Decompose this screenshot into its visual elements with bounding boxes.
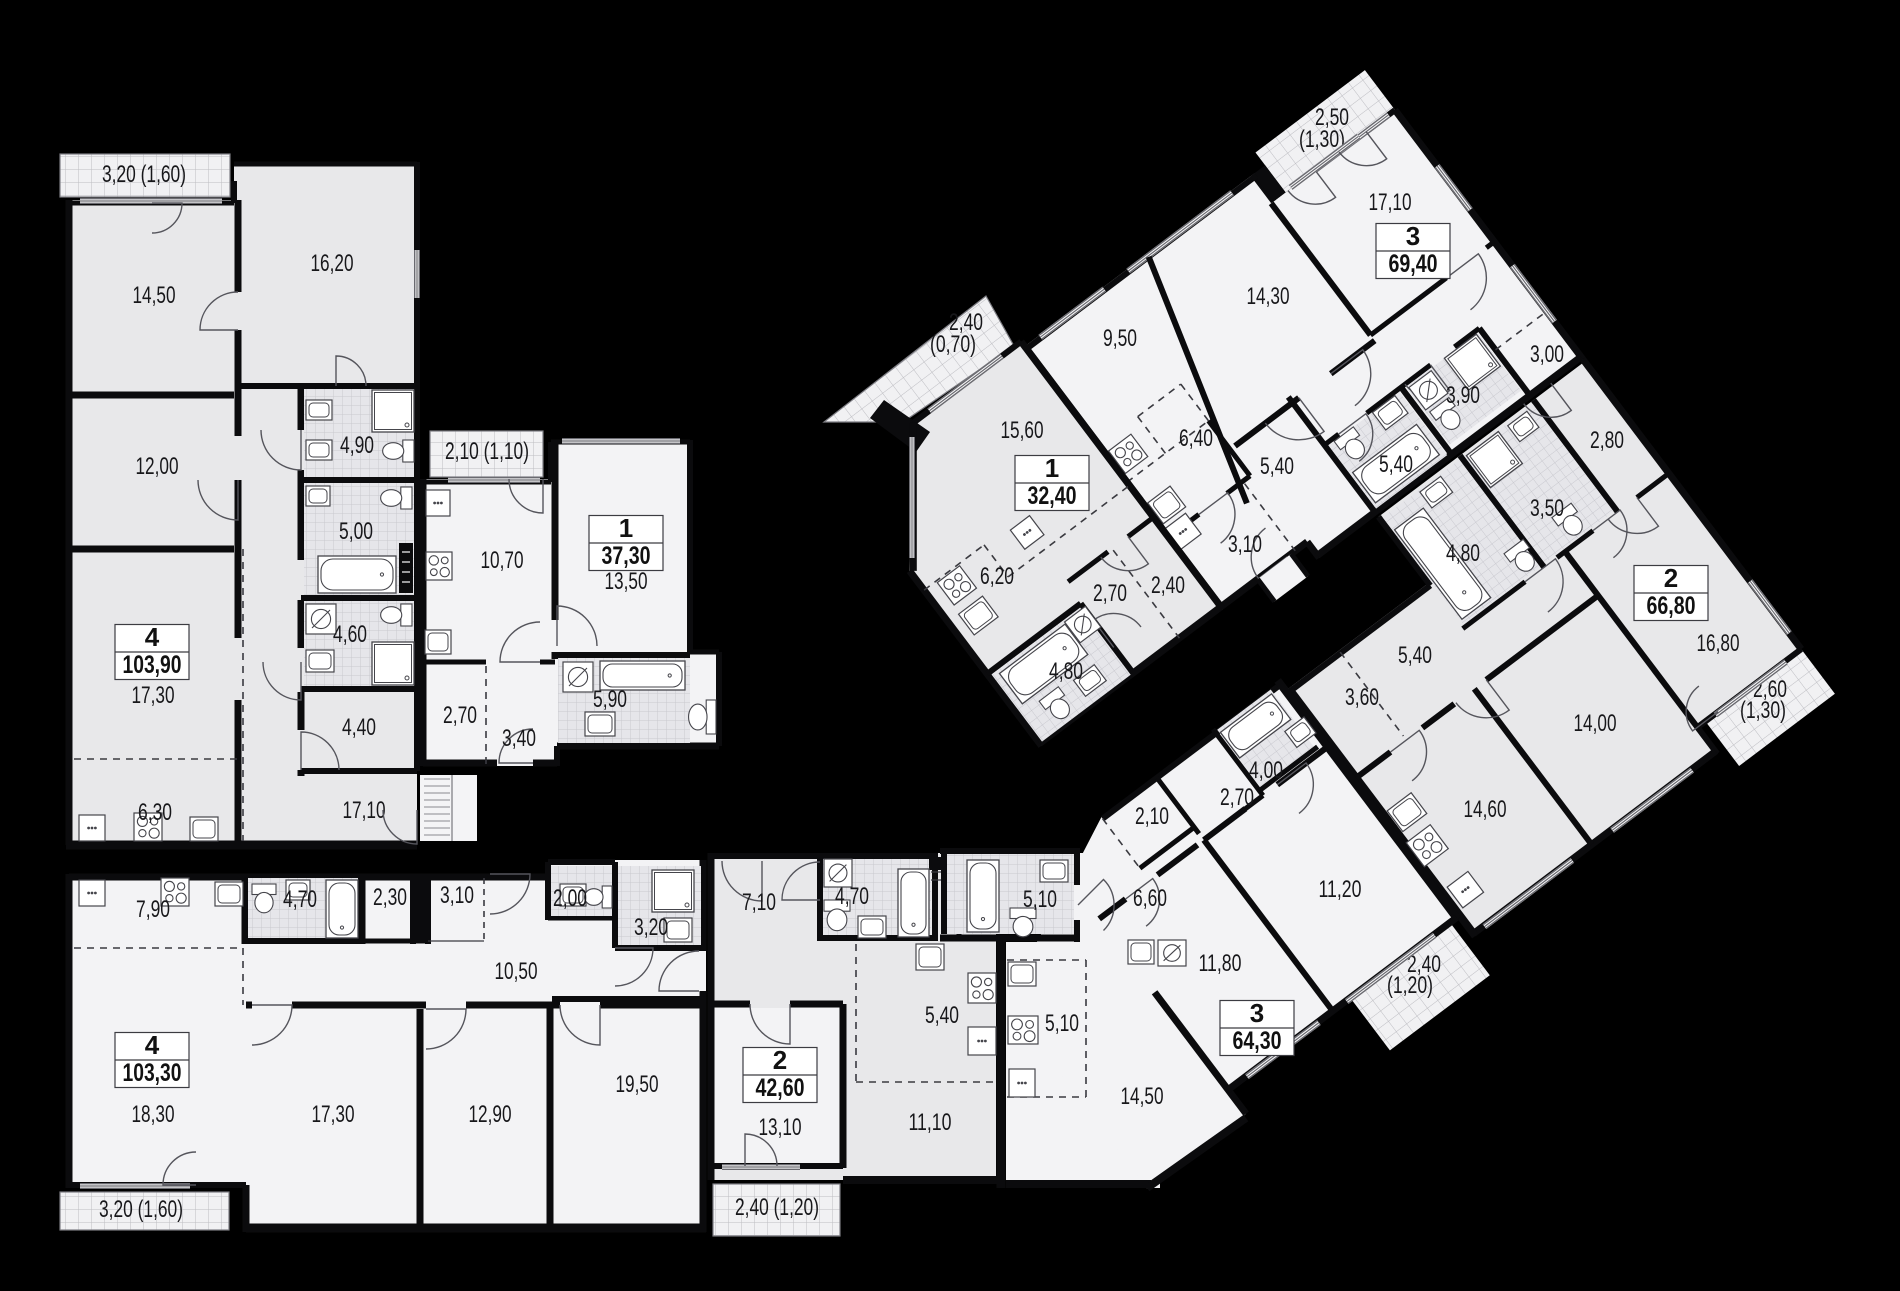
svg-text:2,70: 2,70: [443, 702, 477, 729]
svg-text:3,10: 3,10: [1228, 531, 1262, 558]
svg-text:6,40: 6,40: [1179, 425, 1213, 452]
svg-text:14,60: 14,60: [1464, 796, 1507, 823]
svg-text:5,40: 5,40: [1260, 453, 1294, 480]
svg-text:2,70: 2,70: [1093, 580, 1127, 607]
svg-text:16,20: 16,20: [311, 250, 354, 277]
svg-text:3: 3: [1406, 221, 1420, 251]
svg-text:2,30: 2,30: [373, 884, 407, 911]
svg-text:7,90: 7,90: [136, 896, 170, 923]
svg-text:18,30: 18,30: [132, 1101, 175, 1128]
svg-text:10,70: 10,70: [481, 547, 524, 574]
svg-text:66,80: 66,80: [1647, 592, 1696, 620]
svg-text:103,90: 103,90: [123, 651, 182, 679]
svg-text:(1,20): (1,20): [1387, 972, 1433, 999]
svg-text:10,50: 10,50: [495, 958, 538, 985]
svg-text:4,70: 4,70: [835, 883, 869, 910]
svg-text:4: 4: [145, 622, 160, 652]
svg-text:3,20: 3,20: [634, 914, 668, 941]
svg-text:13,50: 13,50: [605, 568, 648, 595]
svg-text:2,70: 2,70: [1220, 784, 1254, 811]
svg-text:1: 1: [619, 513, 633, 543]
svg-text:3: 3: [1250, 998, 1264, 1028]
svg-text:15,60: 15,60: [1001, 417, 1044, 444]
svg-text:6,60: 6,60: [1133, 885, 1167, 912]
svg-text:(0,70): (0,70): [930, 331, 976, 358]
svg-text:5,10: 5,10: [1045, 1010, 1079, 1037]
svg-text:17,30: 17,30: [132, 682, 175, 709]
svg-text:3,00: 3,00: [1530, 341, 1564, 368]
svg-text:11,10: 11,10: [909, 1109, 952, 1136]
svg-text:12,90: 12,90: [469, 1101, 512, 1128]
svg-text:4,80: 4,80: [1049, 658, 1083, 685]
svg-text:2,10 (1,10): 2,10 (1,10): [445, 438, 529, 465]
svg-text:(1,30): (1,30): [1740, 697, 1786, 724]
svg-text:64,30: 64,30: [1233, 1027, 1282, 1055]
svg-text:5,10: 5,10: [1023, 886, 1057, 913]
svg-text:3,10: 3,10: [440, 882, 474, 909]
svg-text:14,00: 14,00: [1574, 710, 1617, 737]
svg-text:2,40: 2,40: [1151, 572, 1185, 599]
svg-text:4,40: 4,40: [342, 714, 376, 741]
svg-text:3,20 (1,60): 3,20 (1,60): [99, 1196, 183, 1223]
svg-text:7,10: 7,10: [742, 889, 776, 916]
svg-text:2,80: 2,80: [1590, 427, 1624, 454]
svg-text:17,10: 17,10: [1369, 189, 1412, 216]
svg-text:4,90: 4,90: [340, 432, 374, 459]
svg-text:5,90: 5,90: [593, 686, 627, 713]
svg-text:11,20: 11,20: [1319, 876, 1362, 903]
svg-text:5,40: 5,40: [925, 1002, 959, 1029]
svg-text:2,10: 2,10: [1135, 803, 1169, 830]
svg-text:1: 1: [1045, 453, 1059, 483]
svg-text:42,60: 42,60: [756, 1074, 805, 1102]
svg-text:37,30: 37,30: [602, 542, 651, 570]
svg-text:19,50: 19,50: [616, 1071, 659, 1098]
svg-text:3,60: 3,60: [1345, 684, 1379, 711]
svg-text:5,40: 5,40: [1398, 642, 1432, 669]
svg-text:3,40: 3,40: [502, 725, 536, 752]
svg-text:12,00: 12,00: [136, 453, 179, 480]
svg-text:2: 2: [1664, 563, 1678, 593]
svg-text:13,10: 13,10: [759, 1114, 802, 1141]
svg-text:4,60: 4,60: [333, 621, 367, 648]
svg-text:9,50: 9,50: [1103, 325, 1137, 352]
svg-text:4: 4: [145, 1030, 160, 1060]
svg-text:32,40: 32,40: [1028, 482, 1077, 510]
svg-text:14,50: 14,50: [1121, 1083, 1164, 1110]
svg-text:2: 2: [773, 1045, 787, 1075]
svg-text:3,90: 3,90: [1446, 382, 1480, 409]
svg-text:5,40: 5,40: [1379, 451, 1413, 478]
svg-text:16,80: 16,80: [1697, 630, 1740, 657]
svg-text:3,20 (1,60): 3,20 (1,60): [102, 161, 186, 188]
svg-text:14,30: 14,30: [1247, 283, 1290, 310]
svg-text:4,80: 4,80: [1446, 540, 1480, 567]
svg-text:11,80: 11,80: [1199, 950, 1242, 977]
svg-text:103,30: 103,30: [123, 1059, 182, 1087]
svg-text:69,40: 69,40: [1389, 250, 1438, 278]
svg-text:2,00: 2,00: [553, 885, 587, 912]
svg-text:3,50: 3,50: [1530, 495, 1564, 522]
svg-text:4,70: 4,70: [283, 886, 317, 913]
svg-text:2,40 (1,20): 2,40 (1,20): [735, 1194, 819, 1221]
svg-text:14,50: 14,50: [133, 282, 176, 309]
svg-text:6,20: 6,20: [980, 563, 1014, 590]
svg-text:5,00: 5,00: [339, 518, 373, 545]
svg-text:17,30: 17,30: [312, 1101, 355, 1128]
svg-text:17,10: 17,10: [343, 797, 386, 824]
svg-text:6,30: 6,30: [138, 799, 172, 826]
svg-text:4,00: 4,00: [1249, 757, 1283, 784]
